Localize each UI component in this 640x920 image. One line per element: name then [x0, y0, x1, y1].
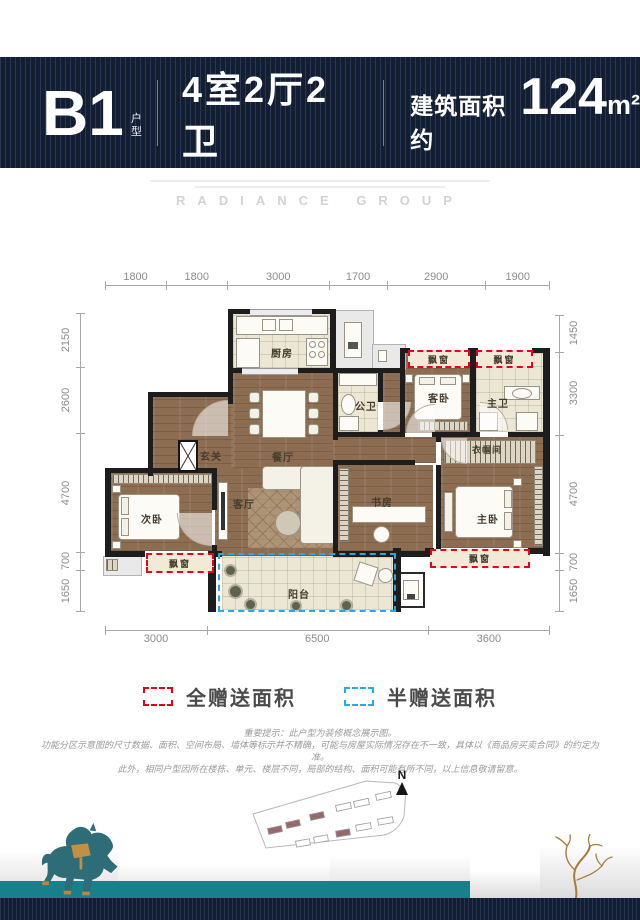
room-label-guest-bedroom: 客卧	[428, 390, 450, 405]
legend-swatch-blue	[344, 687, 374, 706]
header-divider	[383, 80, 384, 146]
nightstand	[513, 540, 522, 548]
platform-unit	[344, 322, 362, 358]
tv	[221, 492, 225, 530]
dimension-value: 1800	[184, 271, 208, 283]
wall	[105, 468, 111, 556]
dimension-segment: 1800	[105, 268, 166, 286]
dimension-segment: 2900	[387, 268, 486, 286]
disclaimer-line: 重要提示：此户型为装修概念展示图。	[40, 727, 600, 739]
burner	[309, 351, 316, 358]
room-label-living: 客厅	[233, 496, 255, 511]
dimension-value: 700	[568, 552, 580, 570]
kitchen-sink	[279, 319, 293, 331]
toilet	[516, 412, 538, 431]
compass-arrow-icon	[396, 782, 408, 795]
dimension-value: 4700	[60, 481, 72, 505]
legend: 全赠送面积 半赠送面积	[0, 682, 640, 711]
bookshelf	[339, 468, 349, 542]
room-label-cloakroom: 衣帽间	[472, 443, 502, 456]
bay-window-master-bedroom: 飘窗	[430, 549, 530, 568]
wall	[148, 392, 233, 397]
wall	[333, 368, 338, 440]
bay-window-label: 飘窗	[493, 353, 515, 366]
floorplan-flyer: B1 户型 4室2厅2卫 建筑面积约 124 m² RADIANCE GROUP…	[0, 0, 640, 920]
dimension-value: 1650	[60, 579, 72, 603]
dimension-segment: 3000	[105, 630, 207, 648]
dimension-segment: 1700	[329, 268, 387, 286]
bay-window-label: 飘窗	[169, 557, 191, 570]
chair	[308, 424, 319, 435]
platform-vent	[348, 342, 358, 349]
bay-window-master-bath: 飘窗	[476, 350, 533, 368]
pillow	[121, 518, 129, 536]
bay-window-label: 飘窗	[428, 353, 450, 366]
unit-code: B1	[42, 81, 124, 145]
room-label-master-bedroom: 主卧	[477, 511, 499, 526]
dimension-value: 6500	[305, 633, 329, 645]
balcony-gift-outline	[218, 553, 396, 612]
legend-label: 半赠送面积	[387, 682, 497, 711]
pillow	[504, 512, 512, 530]
chair	[249, 424, 260, 435]
pillow	[440, 377, 456, 385]
wall	[436, 465, 441, 557]
wall	[298, 368, 336, 373]
wall	[543, 348, 550, 556]
dimension-value: 2150	[60, 328, 72, 352]
wall	[333, 432, 405, 437]
dimension-segment: 3000	[227, 268, 329, 286]
dimension-segment: 3300	[552, 352, 578, 435]
toilet	[341, 394, 356, 415]
dimension-value: 3300	[568, 381, 580, 405]
dimension-value: 3600	[477, 633, 501, 645]
dimension-segment: 2600	[62, 367, 88, 433]
unit-suffix: 户型	[131, 113, 143, 139]
room-label-balcony: 阳台	[288, 586, 310, 601]
dimension-value: 1650	[568, 579, 580, 603]
room-label-dining: 餐厅	[272, 449, 294, 464]
dimension-chain-top: 180018003000170029001900	[105, 268, 550, 286]
legend-item-full-gift: 全赠送面积	[143, 682, 296, 711]
disclaimer-line: 功能分区示意图的尺寸数据、面积、空间布局、墙体等标示并不精确，可能与房屋实际情况…	[40, 739, 600, 763]
room-label-master-bath: 主卫	[487, 395, 509, 410]
chair	[308, 392, 319, 403]
desk-chair	[373, 526, 390, 543]
dimension-value: 2600	[60, 388, 72, 412]
room-layout-text: 4室2厅2卫	[182, 61, 357, 165]
heater-detail	[407, 594, 415, 599]
sofa-chaise	[300, 466, 336, 544]
dimension-segment: 4700	[552, 435, 578, 553]
wall	[333, 368, 405, 373]
compass-north-label: N	[392, 770, 412, 781]
wall	[333, 460, 415, 465]
dimension-segment: 1900	[485, 268, 550, 286]
legend-label: 全赠送面积	[186, 682, 296, 711]
pillow	[121, 497, 129, 515]
area-unit: m²	[607, 90, 640, 121]
bay-window-guest: 飘窗	[408, 350, 470, 368]
dimension-value: 2900	[424, 271, 448, 283]
room-label-study: 书房	[371, 494, 393, 509]
pillow	[419, 377, 435, 385]
dimension-value: 1900	[505, 271, 529, 283]
area-prefix: 建筑面积约	[410, 87, 516, 155]
fine-print-line	[195, 186, 445, 188]
bath-vanity	[339, 373, 377, 386]
dimension-segment: 1650	[552, 570, 578, 612]
chair	[249, 392, 260, 403]
wall	[508, 432, 545, 437]
wall	[148, 392, 153, 476]
dining-table	[262, 390, 306, 438]
area-group: 建筑面积约 124 m²	[410, 71, 640, 155]
dimension-segment: 700	[552, 553, 578, 571]
basin	[512, 388, 532, 399]
kitchen-sink	[262, 319, 276, 331]
legend-swatch-red	[143, 687, 173, 706]
wall	[212, 468, 217, 510]
room-label-kitchen: 厨房	[271, 345, 293, 360]
dimension-chain-left: 2150260047007001650	[62, 313, 88, 612]
dimension-segment: 2150	[62, 313, 88, 367]
fine-print-line	[150, 180, 490, 182]
brand-name: RADIANCE GROUP	[0, 193, 640, 208]
wall	[400, 348, 405, 437]
kitchen-pass-window	[242, 368, 298, 375]
dimension-value: 3000	[144, 633, 168, 645]
footer-band	[0, 898, 640, 920]
closet	[534, 466, 543, 546]
wall	[105, 551, 145, 557]
platform-grille	[106, 559, 118, 571]
wall	[228, 368, 233, 404]
fridge	[236, 338, 260, 368]
room-label-public-bath: 公卫	[355, 398, 377, 413]
dimension-value: 3000	[266, 271, 290, 283]
dimension-segment: 3600	[428, 630, 550, 648]
dimension-value: 700	[60, 552, 72, 570]
kitchen-window	[250, 309, 312, 316]
coffee-table	[275, 510, 301, 536]
wall	[528, 548, 545, 554]
platform-unit	[378, 350, 387, 362]
burner	[318, 351, 325, 358]
horse-statue	[38, 822, 134, 900]
dimension-value: 4700	[568, 481, 580, 505]
dimension-chain-bottom: 300065003600	[105, 630, 550, 648]
dimension-segment: 700	[62, 552, 88, 570]
chair	[249, 408, 260, 419]
nightstand	[462, 374, 470, 383]
dimension-segment: 4700	[62, 433, 88, 552]
legend-item-half-gift: 半赠送面积	[344, 682, 497, 711]
dimension-segment: 1650	[62, 570, 88, 612]
nightstand	[513, 478, 522, 486]
wall	[105, 468, 217, 473]
dimension-segment: 1800	[166, 268, 227, 286]
pipe-shaft	[178, 440, 198, 472]
dimension-value: 1700	[346, 271, 370, 283]
room-label-entry: 玄关	[200, 448, 222, 463]
shaft-cross	[180, 442, 196, 470]
nightstand	[112, 485, 121, 493]
bench	[444, 492, 453, 532]
burner	[318, 341, 325, 348]
header-divider	[157, 80, 158, 146]
wardrobe	[112, 474, 212, 484]
wall	[228, 309, 233, 372]
pillow	[504, 490, 512, 508]
dimension-segment: 1450	[552, 315, 578, 352]
dimension-chain-right: 1450330047007001650	[552, 315, 578, 612]
disclaimer: 重要提示：此户型为装修概念展示图。 功能分区示意图的尺寸数据、面积、空间布局、墙…	[40, 727, 600, 775]
wall	[330, 309, 336, 372]
tree-branch	[538, 834, 618, 898]
bay-window-second-bedroom: 飘窗	[146, 553, 214, 573]
dimension-value: 1450	[568, 321, 580, 345]
chair	[308, 408, 319, 419]
wall	[333, 462, 338, 557]
nightstand	[405, 374, 413, 383]
compass: N	[392, 770, 412, 795]
bay-window-label: 飘窗	[469, 552, 491, 565]
header-banner: B1 户型 4室2厅2卫 建筑面积约 124 m²	[0, 57, 640, 168]
area-value: 124	[520, 71, 607, 123]
dimension-segment: 6500	[207, 630, 428, 648]
nightstand	[112, 541, 121, 549]
wall	[436, 432, 441, 442]
room-label-second-bedroom: 次卧	[141, 511, 163, 526]
burner	[309, 341, 316, 348]
dimension-value: 1800	[123, 271, 147, 283]
shower	[339, 416, 359, 431]
wall	[378, 368, 383, 402]
